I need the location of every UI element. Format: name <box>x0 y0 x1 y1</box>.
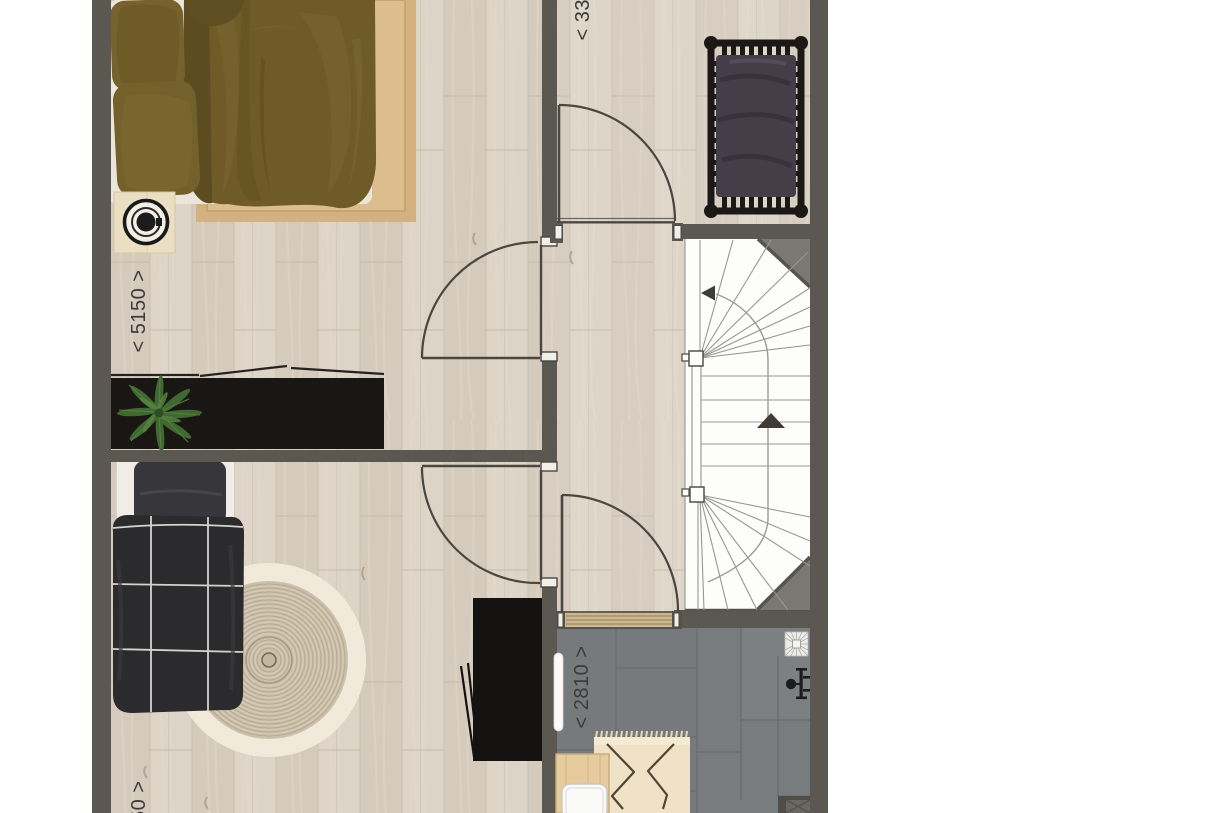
svg-text:< 5150 >: < 5150 > <box>128 270 150 353</box>
svg-text:< 3050 >: < 3050 > <box>128 781 150 813</box>
svg-text:< 2810 >: < 2810 > <box>571 646 593 729</box>
svg-text:< 3310 >: < 3310 > <box>572 0 594 40</box>
